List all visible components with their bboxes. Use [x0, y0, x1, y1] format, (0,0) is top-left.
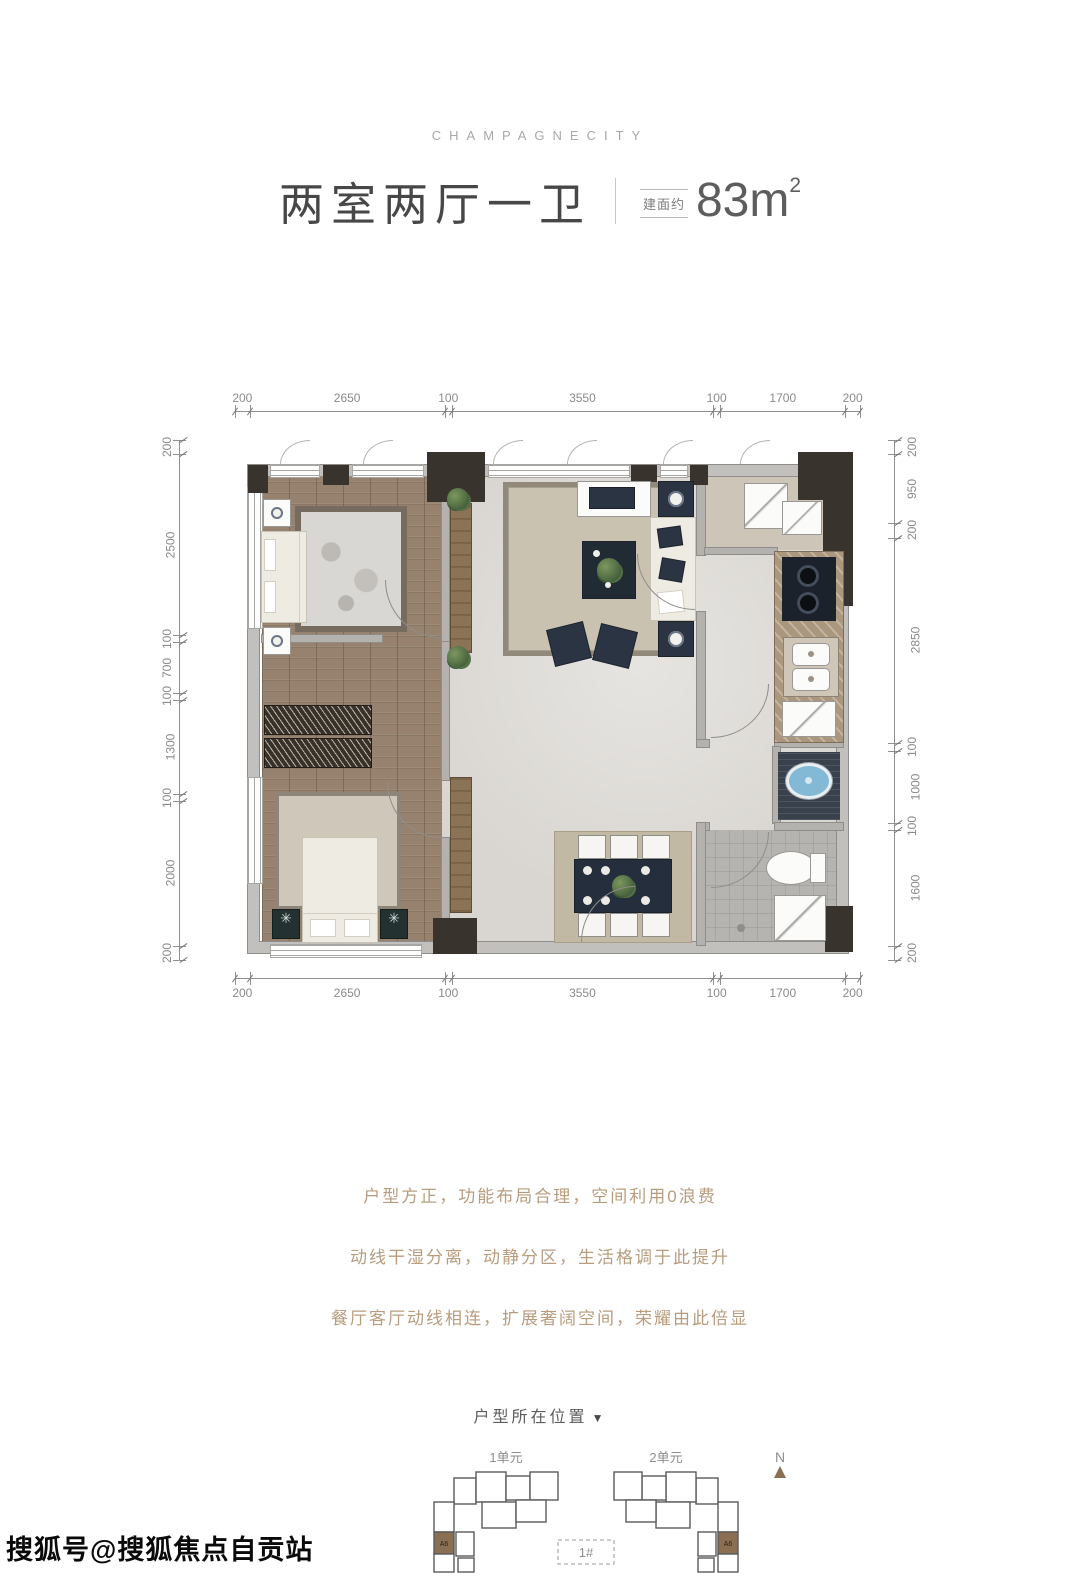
wall-kitchen-divider-lower: [697, 612, 705, 743]
dining-chair: [579, 836, 605, 858]
master-rug: [295, 506, 407, 632]
building-outline-unit2: [614, 1472, 738, 1572]
window-arc: [280, 440, 310, 464]
column: [798, 452, 853, 500]
description-line: 餐厅客厅动线相连，扩展奢阔空间，荣耀由此倍显: [0, 1304, 1080, 1329]
dim-label: 1300: [163, 734, 177, 761]
building-location-map: 1单元 2单元 A6 A6 1# N: [412, 1440, 812, 1580]
wardrobe-row: [265, 706, 371, 734]
floor-plan: ✳ ✳: [235, 440, 860, 960]
appliance: [783, 702, 835, 736]
dim-label: 2650: [334, 391, 361, 405]
dim-label: 2000: [163, 860, 177, 887]
area-superscript: 2: [789, 174, 801, 197]
title-row: 两室两厅一卫 建面约 83m2: [0, 168, 1080, 233]
area-value: 83m2: [696, 177, 801, 225]
window-arc: [363, 440, 393, 464]
window-arc: [567, 440, 597, 464]
dim-label: 1600: [908, 874, 922, 901]
column: [433, 918, 477, 954]
dim-label: 100: [905, 816, 919, 836]
kitchen-sink: [784, 638, 838, 696]
page-title: 两室两厅一卫: [279, 168, 591, 233]
dim-label: 2500: [163, 531, 177, 558]
bed2-nightstand: ✳: [381, 910, 407, 938]
toilet: [767, 852, 815, 884]
dim-label: 2650: [334, 986, 361, 1000]
dim-label: 200: [160, 943, 174, 963]
description-block: 户型方正，功能布局合理，空间利用0浪费 动线干湿分离，动静分区，生活格调于此提升…: [0, 1182, 1080, 1365]
unit2-cell-label: A6: [724, 1541, 733, 1548]
wash-basin: [789, 766, 829, 796]
wall-bath-top-b: [775, 823, 843, 830]
dimension-rail-right: 200950200285010010001001600200: [886, 440, 912, 960]
window-arc: [740, 440, 770, 464]
location-title-text: 户型所在位置: [474, 1409, 588, 1426]
area-group: 建面约 83m2: [640, 177, 801, 225]
side-table: [659, 622, 693, 656]
window-bottom-bed2: [271, 945, 421, 957]
brand-logotype: CHAMPAGNECITY: [0, 128, 1080, 143]
unit2-label: 2单元: [649, 1450, 682, 1465]
compass-needle-icon: [774, 1466, 786, 1478]
plant: [447, 646, 469, 668]
location-title: 户型所在位置▼: [0, 1403, 1080, 1427]
master-bed: [262, 532, 306, 622]
dim-label: 3550: [569, 986, 596, 1000]
stove: [783, 558, 835, 620]
dim-label: 200: [232, 986, 252, 1000]
window-top-living: [489, 465, 629, 477]
toilet-tank: [811, 854, 825, 882]
dim-label: 200: [905, 943, 919, 963]
master-nightstand: [264, 628, 290, 654]
column: [825, 906, 853, 952]
compass-label: N: [775, 1449, 785, 1465]
dim-label: 3550: [569, 391, 596, 405]
bed2: [303, 838, 377, 942]
dim-label: 2850: [908, 627, 922, 654]
dim-label: 100: [707, 986, 727, 1000]
description-line: 户型方正，功能布局合理，空间利用0浪费: [0, 1182, 1080, 1207]
dim-label: 100: [438, 986, 458, 1000]
dining-chair: [643, 914, 669, 936]
description-line: 动线干湿分离，动静分区，生活格调于此提升: [0, 1243, 1080, 1268]
dining-chair: [611, 836, 637, 858]
living-console: [451, 504, 471, 652]
dim-label: 100: [707, 391, 727, 405]
dim-label: 200: [160, 437, 174, 457]
dim-label: 200: [843, 391, 863, 405]
area-label: 建面约: [640, 189, 688, 218]
dim-label: 700: [160, 657, 174, 677]
fridge: [745, 484, 787, 528]
cabinet: [783, 502, 821, 534]
unit1-cell-label: A6: [440, 1541, 449, 1548]
master-nightstand: [264, 500, 290, 526]
hallway-console: [451, 778, 471, 912]
wardrobe-row: [265, 739, 371, 767]
window-top-right: [661, 465, 687, 477]
dim-label: 950: [905, 479, 919, 499]
dim-label: 100: [160, 629, 174, 649]
column: [323, 465, 349, 485]
wall-bath-left: [697, 823, 705, 945]
dimension-rail-top: 200265010035501001700200: [235, 396, 860, 420]
dim-label: 200: [905, 520, 919, 540]
shower: [775, 896, 825, 940]
plant: [447, 488, 469, 510]
dim-label: 1700: [769, 986, 796, 1000]
dim-label: 200: [843, 986, 863, 1000]
watermark: 搜狐号@搜狐焦点自贡站: [6, 1528, 313, 1567]
dim-label: 100: [438, 391, 458, 405]
wall-corridor-bottom: [705, 548, 777, 554]
window-left-master: [248, 488, 262, 628]
shower-drain: [737, 924, 745, 932]
coffee-table: [583, 542, 635, 598]
wall-kitchen-divider-upper: [697, 477, 705, 555]
wall-kitchen-bottom-a: [697, 740, 709, 747]
dim-label: 200: [232, 391, 252, 405]
column: [248, 465, 268, 493]
side-table: [659, 482, 693, 516]
dim-label: 100: [160, 686, 174, 706]
dimension-rail-left: 200250010070010013001002000200: [162, 440, 188, 960]
dim-label: 1700: [769, 391, 796, 405]
bed2-nightstand: ✳: [273, 910, 299, 938]
window-arc: [663, 440, 693, 464]
dim-label: 100: [905, 737, 919, 757]
building-number: 1#: [579, 1545, 594, 1560]
down-arrow-icon: ▼: [592, 1411, 607, 1425]
title-divider: [615, 178, 616, 224]
dim-label: 1000: [908, 773, 922, 800]
area-number: 83m: [696, 174, 789, 227]
dining-chair: [643, 836, 669, 858]
dim-label: 200: [905, 437, 919, 457]
dimension-rail-bottom: 200265010035501001700200: [235, 970, 860, 996]
dim-label: 100: [160, 787, 174, 807]
window-arc: [493, 440, 523, 464]
window-top-master-2: [353, 465, 423, 477]
page: CHAMPAGNECITY 两室两厅一卫 建面约 83m2 2002650100…: [0, 0, 1080, 1583]
building-outline-unit1: [434, 1472, 558, 1572]
window-top-master-1: [271, 465, 319, 477]
tv: [590, 488, 634, 508]
unit1-label: 1单元: [489, 1450, 522, 1465]
window-left-bed2: [248, 778, 262, 883]
